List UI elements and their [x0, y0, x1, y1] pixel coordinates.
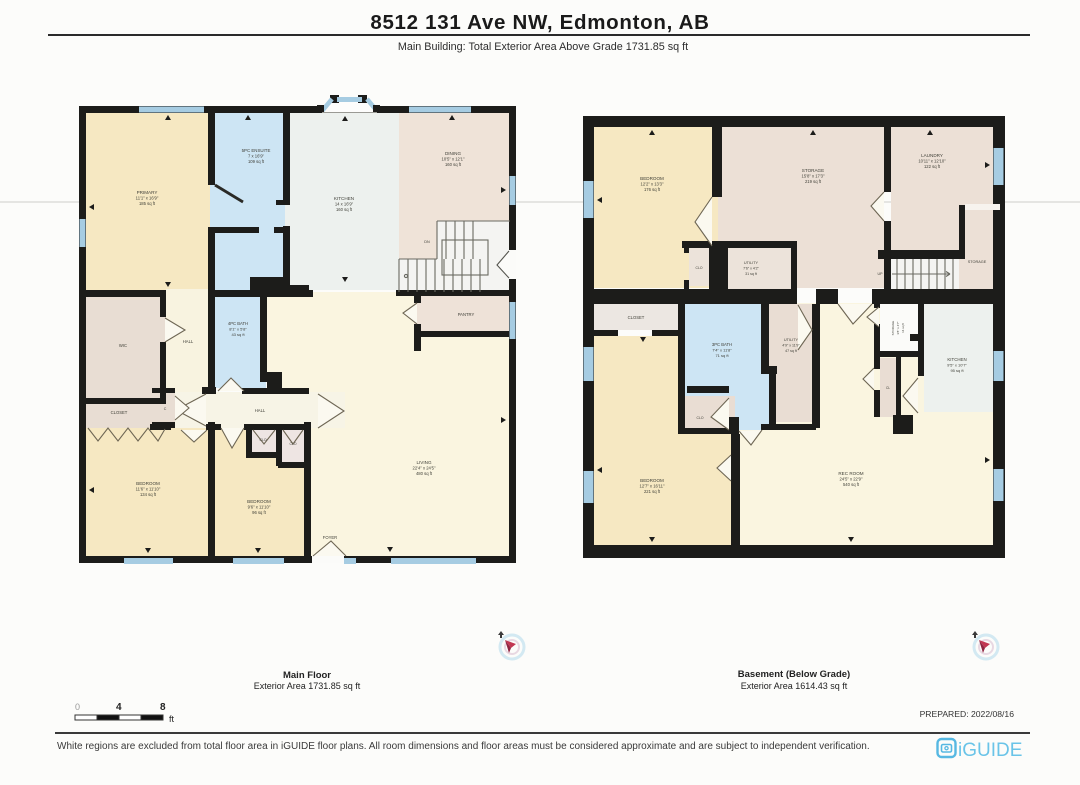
svg-text:STORAGE: STORAGE [968, 260, 987, 264]
svg-text:STORAGE: STORAGE [891, 321, 895, 336]
svg-text:CLO: CLO [260, 438, 267, 442]
svg-text:14 sq ft: 14 sq ft [901, 323, 905, 333]
svg-text:134 sq ft: 134 sq ft [140, 492, 157, 497]
svg-text:11'1" x 16'9": 11'1" x 16'9" [136, 196, 159, 201]
svg-text:CLOSET: CLOSET [111, 410, 128, 415]
svg-text:10'5" x 12'1": 10'5" x 12'1" [442, 157, 465, 162]
svg-text:HALL: HALL [183, 339, 194, 344]
svg-text:12'2" x 13'3": 12'2" x 13'3" [641, 182, 664, 187]
svg-text:109 sq ft: 109 sq ft [248, 159, 265, 164]
svg-text:PRIMARY: PRIMARY [137, 190, 158, 195]
svg-text:43 sq ft: 43 sq ft [231, 332, 245, 337]
svg-text:7'4" x 11'8": 7'4" x 11'8" [712, 348, 732, 353]
svg-text:0: 0 [75, 702, 80, 712]
svg-text:96 sq ft: 96 sq ft [252, 510, 267, 515]
svg-text:BEDROOM: BEDROOM [640, 478, 664, 483]
svg-text:4: 4 [116, 702, 122, 713]
svg-text:480 sq ft: 480 sq ft [416, 471, 433, 476]
svg-text:3PC BATH: 3PC BATH [712, 342, 732, 347]
svg-text:iGUIDE: iGUIDE [958, 740, 1022, 761]
svg-text:CL: CL [886, 386, 890, 390]
svg-text:UTILITY: UTILITY [744, 261, 759, 265]
svg-text:185 sq ft: 185 sq ft [139, 201, 156, 206]
svg-text:CLOSET: CLOSET [628, 315, 645, 320]
svg-text:540 sq ft: 540 sq ft [843, 482, 860, 487]
svg-text:10'11" x 12'10": 10'11" x 12'10" [918, 159, 946, 164]
svg-text:24'5" x 22'9": 24'5" x 22'9" [840, 477, 863, 482]
svg-text:47 sq ft: 47 sq ft [785, 349, 797, 353]
svg-text:95 sq ft: 95 sq ft [950, 368, 964, 373]
svg-text:DN: DN [424, 240, 430, 244]
svg-text:LIVING: LIVING [416, 460, 431, 465]
svg-text:WIC: WIC [119, 343, 127, 348]
svg-text:71 sq ft: 71 sq ft [715, 353, 729, 358]
svg-text:3'8" x 4'7": 3'8" x 4'7" [896, 321, 900, 334]
svg-text:KITCHEN: KITCHEN [947, 357, 966, 362]
svg-text:LAUNDRY: LAUNDRY [921, 153, 943, 158]
svg-text:CLO: CLO [697, 416, 704, 420]
svg-text:ft: ft [169, 714, 175, 724]
svg-text:PANTRY: PANTRY [458, 312, 475, 317]
svg-text:8: 8 [160, 702, 166, 713]
svg-text:9'5" x 10'7": 9'5" x 10'7" [947, 363, 967, 368]
svg-text:REC ROOM: REC ROOM [838, 471, 863, 476]
svg-text:15'8" x 17'3": 15'8" x 17'3" [802, 174, 825, 179]
svg-text:31 sq ft: 31 sq ft [745, 272, 757, 276]
svg-text:DINING: DINING [445, 151, 462, 156]
svg-text:UTILITY: UTILITY [784, 338, 799, 342]
svg-text:BEDROOM: BEDROOM [247, 499, 271, 504]
svg-text:9'6" x 11'10": 9'6" x 11'10" [248, 505, 271, 510]
svg-text:8'1" x 5'8": 8'1" x 5'8" [229, 327, 247, 332]
svg-text:22'4" x 24'5": 22'4" x 24'5" [413, 466, 436, 471]
svg-text:14 x 16'9": 14 x 16'9" [335, 202, 354, 207]
svg-text:CLO: CLO [696, 266, 703, 270]
svg-text:KITCHEN: KITCHEN [334, 196, 354, 201]
svg-text:219 sq ft: 219 sq ft [805, 179, 822, 184]
svg-text:BEDROOM: BEDROOM [640, 176, 664, 181]
svg-text:160 sq ft: 160 sq ft [445, 162, 462, 167]
svg-text:BEDROOM: BEDROOM [136, 481, 160, 486]
svg-text:4PC BATH: 4PC BATH [228, 321, 248, 326]
svg-text:11'6" x 11'10": 11'6" x 11'10" [136, 487, 161, 492]
svg-text:7'6" x 4'2": 7'6" x 4'2" [743, 267, 759, 271]
svg-text:FOYER: FOYER [323, 535, 337, 540]
svg-text:STORAGE: STORAGE [802, 168, 824, 173]
svg-text:7 x 16'9": 7 x 16'9" [248, 154, 265, 159]
svg-text:C: C [164, 407, 167, 411]
svg-text:5PC ENSUITE: 5PC ENSUITE [242, 148, 271, 153]
svg-text:160 sq ft: 160 sq ft [336, 207, 353, 212]
svg-text:UP: UP [878, 272, 884, 276]
svg-text:CLO: CLO [290, 442, 297, 446]
svg-text:122 sq ft: 122 sq ft [924, 164, 941, 169]
svg-text:HALL: HALL [255, 408, 266, 413]
svg-text:221 sq ft: 221 sq ft [644, 489, 661, 494]
svg-text:12'7" x 16'11": 12'7" x 16'11" [640, 484, 665, 489]
svg-text:176 sq ft: 176 sq ft [644, 187, 661, 192]
svg-text:4'9" x 11'9": 4'9" x 11'9" [782, 344, 800, 348]
